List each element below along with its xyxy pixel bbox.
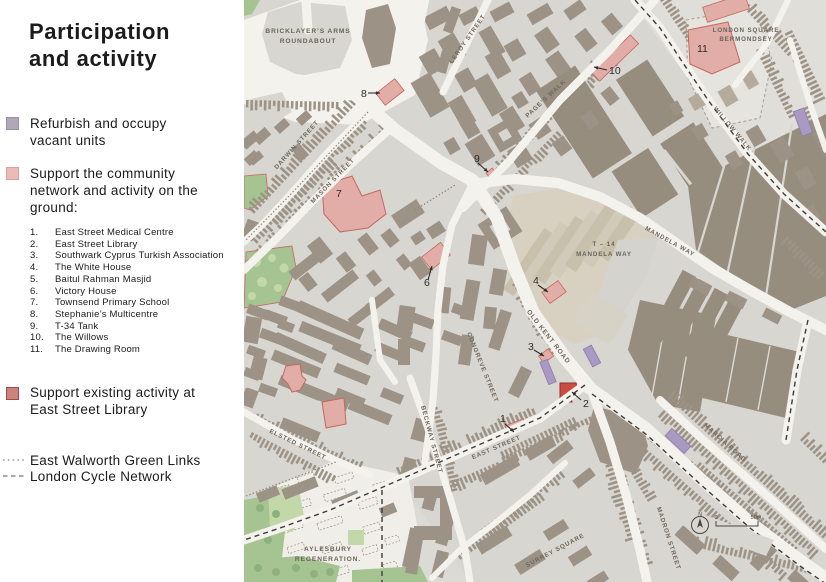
svg-text:N: N — [698, 512, 702, 518]
svg-text:ROUNDABOUT: ROUNDABOUT — [280, 38, 337, 45]
svg-text:7: 7 — [336, 188, 342, 200]
svg-text:BERMONDSEY: BERMONDSEY — [719, 36, 772, 43]
svg-text:1: 1 — [500, 413, 506, 425]
svg-text:9: 9 — [474, 153, 480, 165]
svg-text:LONDON SQUARE: LONDON SQUARE — [713, 27, 780, 34]
svg-text:BRICKLAYER’S ARMS: BRICKLAYER’S ARMS — [265, 28, 350, 35]
svg-text:AYLESBURY: AYLESBURY — [304, 546, 352, 553]
svg-text:11: 11 — [697, 43, 708, 55]
svg-text:8: 8 — [361, 88, 367, 100]
svg-text:2: 2 — [583, 398, 589, 410]
svg-text:3: 3 — [528, 341, 534, 353]
svg-text:0: 0 — [714, 515, 717, 521]
svg-text:T – 14: T – 14 — [593, 241, 616, 248]
svg-text:10: 10 — [609, 65, 621, 77]
svg-text:MANDELA WAY: MANDELA WAY — [576, 251, 632, 258]
svg-text:REGENERATION.: REGENERATION. — [295, 556, 361, 563]
svg-text:4: 4 — [533, 275, 539, 287]
svg-text:50m: 50m — [751, 515, 762, 521]
svg-text:6: 6 — [424, 277, 430, 289]
